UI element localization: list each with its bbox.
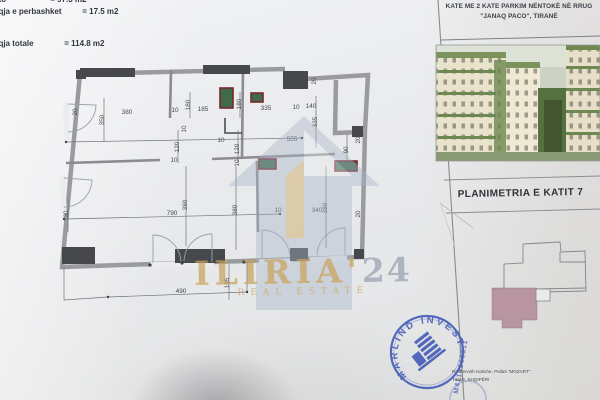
drawing-layer: 2038035010180185180335101402033510120101…	[0, 0, 600, 400]
company-stamp: MARLIND INVEST M4114280311	[373, 299, 486, 400]
dimension-label: 10	[217, 137, 225, 144]
project-header: KATE ME 2 KATE PARKIM NËNTOKË NË RRUG "J…	[438, 2, 600, 22]
dimension-label: 120	[234, 143, 241, 154]
dimension-label: 20	[311, 77, 318, 85]
area-line-shared: aqja e perbashket = 17.5 m2	[0, 8, 194, 23]
dimension-label: 185	[198, 106, 209, 113]
dimension-label: 120	[174, 141, 181, 152]
dimension-label: 20	[355, 136, 362, 144]
window-symbol	[251, 93, 263, 102]
address-block: Rr. Dervish Hatixhe, Pallati "MOZART" Ti…	[452, 368, 600, 384]
dimension-label: 10	[292, 104, 300, 111]
header-rule	[441, 36, 600, 40]
area-label: aqja e perbashket	[0, 8, 80, 17]
area-value: = 114.8 m2	[64, 39, 104, 48]
dimension-label: 380	[122, 109, 133, 116]
dimension-label: 20	[72, 108, 79, 116]
paper-crease	[440, 203, 473, 228]
dimension-label: 180	[185, 99, 192, 110]
dimension-label: 30	[63, 210, 70, 218]
dimension-label: 335	[261, 105, 272, 112]
window-symbol	[220, 88, 233, 108]
project-header-line2: "JANAQ PACO", TIRANË	[438, 12, 600, 22]
building-photo	[436, 44, 600, 161]
dimension-label: 380	[182, 199, 189, 210]
watermark-year: 24	[361, 250, 412, 290]
project-header-line1: KATE ME 2 KATE PARKIM NËNTOKË NË RRUG	[438, 2, 600, 12]
dimension-label: 10	[181, 125, 188, 133]
door-jamb-symbol	[225, 118, 242, 133]
dimension-label: 10	[171, 107, 179, 114]
area-line-net: eto = 97.3 m2	[0, 0, 194, 5]
title-block: MARLIND INVEST M4114280311	[373, 0, 600, 400]
dimension-label: 180	[236, 98, 243, 109]
dimension-label: 10	[234, 159, 241, 167]
area-value: = 17.5 m2	[82, 7, 118, 16]
area-summary: eto = 97.3 m2 aqja e perbashket = 17.5 m…	[0, 0, 194, 51]
watermark-text: ILIRIA'24 REAL ESTATE	[178, 250, 429, 299]
key-plan	[492, 242, 586, 328]
area-label: eto	[0, 0, 48, 5]
area-label: aqja totale	[0, 40, 62, 49]
dimension-label: 10	[170, 157, 178, 164]
dimension-label: 140	[306, 103, 317, 110]
address-line2: Tiranë, SHQIPËRI	[452, 376, 600, 384]
key-plan-shaft	[536, 289, 550, 301]
dimension-label: 350	[99, 114, 106, 125]
title-rule-top	[444, 176, 600, 180]
watermark-apostrophe: '	[346, 251, 362, 290]
scanned-floor-plan-page: 2038035010180185180335101402033510120101…	[0, 0, 600, 400]
highlighted-unit	[492, 288, 537, 328]
dimension-label: 90	[343, 146, 350, 154]
address-line1: Rr. Dervish Hatixhe, Pallati "MOZART"	[452, 368, 600, 376]
dimension-label: 380	[232, 204, 239, 215]
dimension-label: 20	[355, 210, 362, 218]
area-line-total: aqja totale = 114.8 m2	[0, 32, 194, 49]
dimension-label: 790	[167, 210, 178, 217]
title-rule-bottom	[446, 209, 600, 213]
stamp-building-icon	[403, 330, 446, 372]
stamp-code: M4114280311	[453, 339, 469, 394]
area-value: = 97.3 m2	[50, 0, 86, 4]
